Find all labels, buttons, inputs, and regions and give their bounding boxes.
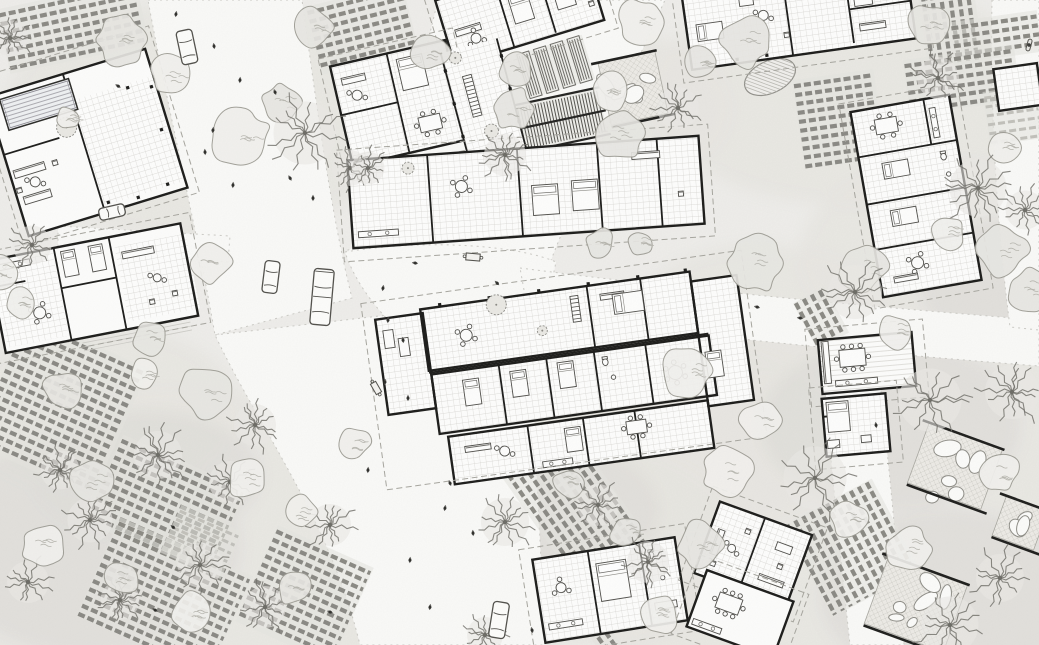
site-plan-stage xyxy=(0,0,1039,645)
site-plan-drawing xyxy=(0,0,1039,645)
paper-grain-texture xyxy=(0,0,1039,645)
